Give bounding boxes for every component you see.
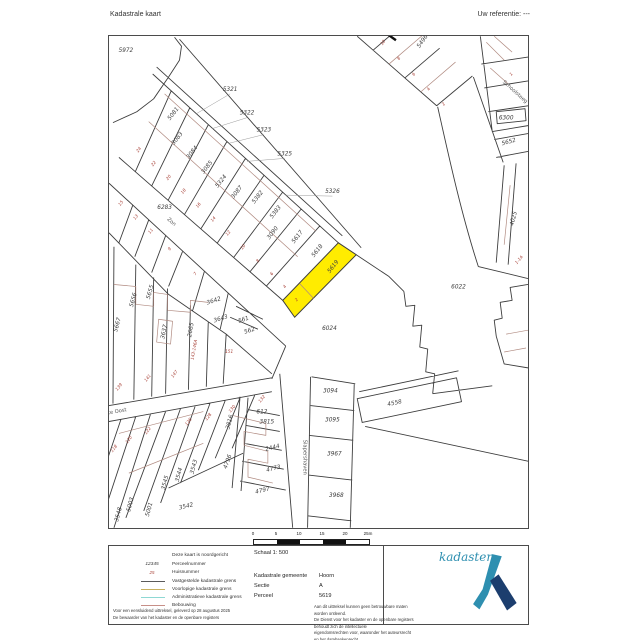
parcel-label: 6283 [157,205,172,211]
house-number-label: 13 [132,213,140,221]
house-number-label: 10 [239,243,247,251]
legend-vastgesteld: Vastgestelde kadastrale grens [137,579,337,587]
parcel-label: 4797 [255,486,271,495]
parcel-label: 5972 [119,48,134,54]
legend-label: Deze kaart is noordgericht [172,553,228,558]
house-number-label: 18 [180,187,188,195]
parcel-label: 3544 [175,467,185,483]
scale-label: Schaal 1: 500 [254,550,288,556]
house-number-label: 1-1A [514,254,525,265]
parcel-label: 3095 [325,418,340,424]
parcel-label: 3087 [230,185,244,200]
scale-tick: 15 [319,531,324,536]
reference-label: Uw referentie: --- [477,11,530,18]
parcel-label: 5321 [223,87,238,93]
house-number-label: 7 [192,271,199,277]
legend-sample: 25 [137,570,167,575]
parcel-label: 3815 [260,419,275,425]
street-name-label: Slapershaven [302,440,308,475]
parcel-label: 3548 [114,506,124,522]
page-title: Kadastrale kaart [110,11,161,18]
parcel-label: 5655 [146,284,156,300]
house-number-label: 11 [147,227,155,235]
bold-building-line [382,36,396,40]
street-name-label: Grote Oost [109,407,127,418]
info-label: Sectie [254,583,270,589]
house-number-label: 15 [117,199,125,207]
parcel-label: 5618 [311,243,325,258]
legend-label: Vastgestelde kadastrale grens [172,579,236,584]
house-number-label: 126 [184,417,194,427]
parcel-label: 5496 [416,36,430,49]
house-number-label: 141 [143,373,153,383]
parcel-label: 5324 [215,174,229,189]
parcel-label: 5323 [257,128,272,134]
info-label: Perceel [254,593,273,599]
legend-line-swatch [141,597,165,598]
parcel-label: 5667 [113,317,123,333]
legend-box: Deze kaart is noordgericht 12345 Perceel… [108,545,529,625]
legend-sample: 12345 [137,562,167,567]
parcel-label: 5326 [325,189,340,195]
parcel-label: 3816 [225,414,235,430]
parcel-label: 2444 [265,444,281,453]
house-number-label: 16 [195,201,203,209]
house-number-label: 147 [170,369,180,379]
house-number-label: 9 [167,246,174,252]
scale-tick: 10 [296,531,301,536]
parcel-label: 6022 [451,284,466,290]
building-outlines [114,36,528,483]
parcel-label: 3085 [201,160,215,175]
parcel-label: 6024 [322,326,337,332]
parcel-label: 3968 [329,493,344,499]
legend-line-swatch [141,581,165,582]
parcel-label: 5322 [240,111,255,117]
house-number-label: 1 [508,71,514,77]
parcel-label: 5656 [129,292,139,308]
parcel-label: 5325 [277,151,292,157]
house-number-label: 6 [269,271,276,277]
parcel-label: 4796 [223,454,234,470]
legend-parcelnumber: 12345 Perceelnummer [137,562,337,570]
legend-label: Huisnummer [172,570,199,575]
cadastral-map: 5972532153225323532553266283508130833084… [108,35,529,529]
legend-north: Deze kaart is noordgericht [137,553,337,561]
house-number-label: 132 [257,394,267,404]
house-number-label: 151 [225,349,233,355]
cadastral-map-svg: 5972532153225323532553266283508130833084… [109,36,528,528]
info-value: Hoorn [319,573,334,579]
kadaster-k-icon [457,552,521,620]
legend-label: Administratieve kadastrale grens [172,595,242,600]
parcel-label: 3967 [327,451,342,457]
parcel-label: 3083 [171,131,185,146]
kadaster-extract-page: { "header": { "title": "Kadastrale kaart… [0,0,640,640]
parcel-label: 5617 [291,229,305,244]
legend-line-swatch [141,589,165,590]
street-name-label: Zon [166,217,177,228]
house-number-label: 24 [135,146,143,154]
house-number-label: 128 [204,412,214,422]
house-number-label: 10 [379,38,387,46]
info-value: A [319,583,323,589]
parcel-label: 3643 [213,314,229,324]
legend-line-swatch [141,605,165,606]
info-value: 5619 [319,593,331,599]
parcel-label: 3094 [323,389,338,395]
fineprint-line: De bewaarder van het kadaster en de open… [113,615,313,622]
house-number-label: 139 [114,382,124,392]
kadaster-logo: kadaster [397,546,528,622]
parcel-label: 5003 [126,496,136,512]
house-number-label: 20 [165,173,173,181]
house-number-label: 120 [124,434,134,444]
highlighted-parcel-5619 [283,243,356,317]
parcel-label: 612 [256,410,267,416]
legend-administratief: Administratieve kadastrale grens [137,595,337,603]
scale-tick: 0 [252,531,255,536]
scale-tick: 25m [364,531,373,536]
parcel-label: 4025 [509,211,519,227]
parcel-label: 3543 [190,459,200,475]
parcel-label: 5382 [251,190,265,205]
parcel-label: 5081 [167,106,181,121]
fineprint-left: Voor een eensluidend uittreksel, gelever… [113,608,313,621]
parcel-label: 5652 [501,138,517,148]
fineprint-line: eigendomsrechten voor, waaronder het aut… [314,630,414,640]
parcel-label: 3642 [206,296,222,306]
parcel-label: 562 [244,327,257,336]
house-number-label: 143-146A [190,339,200,360]
legend-label: Voorlopige kadastrale grens [172,587,231,592]
parcel-label: 2665 [187,322,196,338]
house-number-label: 118 [109,443,119,453]
legend-label: Perceelnummer [172,562,206,567]
legend-voorlopig: Voorlopige kadastrale grens [137,587,337,595]
house-number-label: 8 [396,55,403,61]
house-number-label: 14 [209,215,217,223]
parcel-label: 3542 [178,502,194,511]
parcel-label: 4558 [387,399,403,408]
scale-bar: 0 5 10 15 20 25m [253,531,383,545]
info-label: Kadastrale gemeente [254,573,307,579]
parcel-label: 3637 [160,324,169,340]
parcel-label: 6300 [499,116,514,122]
parcel-label: 3084 [186,145,200,160]
scale-tick: 20 [342,531,347,536]
leader-lines [196,94,332,196]
house-number-label: 12 [224,229,232,237]
house-number-label: 4 [282,284,289,290]
scale-tick: 5 [275,531,278,536]
house-number-label: 130 [227,404,237,414]
house-number-label: 22 [150,160,158,168]
